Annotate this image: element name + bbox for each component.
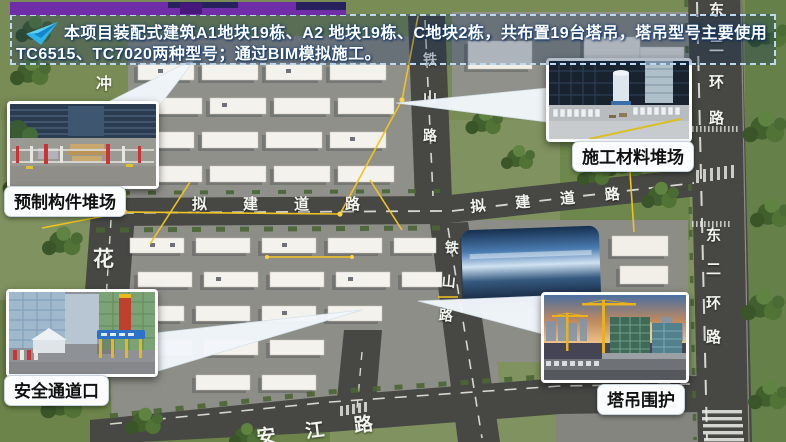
accent-bar-segment [296, 2, 346, 10]
safety-entrance-photo [9, 292, 155, 374]
callout-label-material-yard: 施工材料堆场 [572, 141, 694, 172]
callout-pointer [155, 310, 362, 372]
material-yard-photo [549, 61, 689, 139]
crane-enclosure-photo [544, 295, 686, 380]
callout-safety-entrance [6, 289, 158, 377]
callout-crane-enclosure [541, 292, 689, 383]
prefab-yard-photo [10, 104, 156, 186]
callout-label-crane-enclosure: 塔吊围护 [597, 384, 685, 415]
callout-pointer [418, 296, 543, 334]
callout-prefab-yard [7, 101, 159, 189]
banner-text-line2: TC6515、TC7020两种型号；通过BIM模拟施工。 [16, 40, 381, 64]
callout-label-safety-entrance: 安全通道口 [4, 375, 109, 406]
callout-label-prefab-yard: 预制构件堆场 [4, 186, 126, 217]
callout-pointer [396, 88, 547, 122]
slide-stage: 铁山路 铁山路 拟建道路 拟建道路 东二环路 东二环路 花 冲 安江路 [0, 0, 786, 442]
top-accent-bar [10, 2, 346, 15]
accent-bar-segment [168, 2, 238, 8]
accent-bar-segment [180, 3, 202, 14]
summary-banner: 本项目装配式建筑A1地块19栋、A2 地块19栋、C地块2栋，共布置19台塔吊，… [10, 14, 776, 65]
callout-material-yard [546, 58, 692, 142]
